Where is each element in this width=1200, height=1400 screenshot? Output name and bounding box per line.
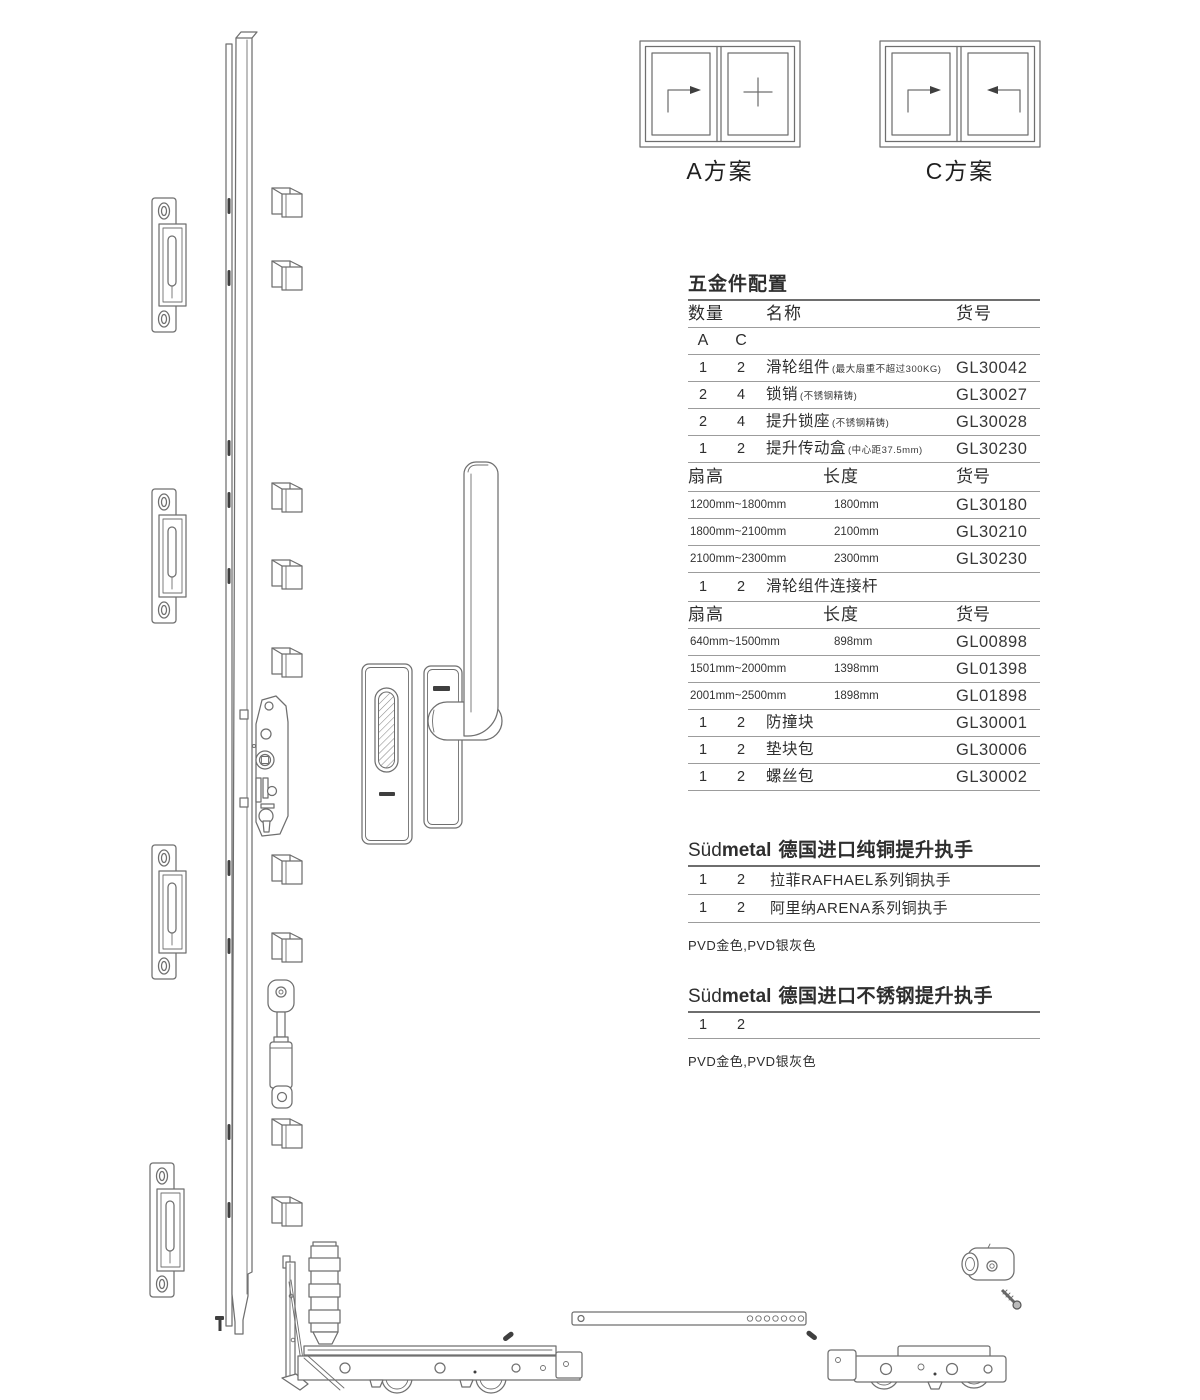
lock-pin-block (272, 188, 302, 217)
table-row: 2 4 锁销(不锈钢精铸) GL30027 (688, 382, 1040, 409)
hardware-config-table: 五金件配置 数量 名称 货号 A C 1 2 滑轮组件(最大扇重不超过300KG… (688, 272, 1040, 791)
item-code: GL30230 (956, 436, 1027, 462)
sash-height-range: 1800mm~2100mm (690, 519, 786, 545)
table-title: 五金件配置 (688, 272, 1040, 301)
qty-a: 1 (688, 895, 718, 922)
lock-keeper-plate (152, 198, 186, 332)
pin (502, 1330, 818, 1342)
qty-a: 1 (688, 764, 718, 790)
lock-pin-block (272, 1197, 302, 1226)
item-code: GL00898 (956, 629, 1027, 655)
table-row: 1 2 拉菲RAFHAEL系列铜执手 (688, 867, 1040, 895)
item-code: GL01398 (956, 656, 1027, 682)
roller-carriage-right (828, 1346, 1006, 1389)
table-header-row: 数量 名称 货号 (688, 301, 1040, 328)
header-code: 货号 (956, 602, 990, 628)
table-row: 2 4 提升锁座(不锈钢精铸) GL30028 (688, 409, 1040, 436)
connecting-rod (572, 1312, 806, 1325)
size-header-row: 扇高 长度 货号 (688, 602, 1040, 629)
item-name: 锁销(不锈钢精铸) (766, 382, 857, 410)
qty-a: 2 (688, 409, 718, 435)
screw (1002, 1290, 1021, 1309)
qty-c: 2 (726, 895, 756, 922)
size-row: 1200mm~1800mm 1800mm GL30180 (688, 492, 1040, 519)
item-note: (不锈钢精铸) (800, 391, 857, 402)
header-sash-height: 扇高 (688, 602, 724, 628)
item-name: 垫块包 (766, 737, 814, 763)
size-row: 2001mm~2500mm 1898mm GL01898 (688, 683, 1040, 710)
item-note: (中心距37.5mm) (848, 445, 923, 456)
size-row: 1501mm~2000mm 1398mm GL01398 (688, 656, 1040, 683)
item-name: 滑轮组件(最大扇重不超过300KG) (766, 355, 941, 383)
table-row: 1 2 防撞块 GL30001 (688, 710, 1040, 737)
item-name: 阿里纳ARENA系列铜执手 (770, 895, 948, 922)
roller-carriage-left (298, 1346, 582, 1393)
sash-height-range: 2100mm~2300mm (690, 546, 786, 572)
qty-c: 2 (726, 355, 756, 381)
item-code: GL30027 (956, 382, 1027, 408)
lift-handle (424, 462, 502, 828)
lock-pin-block (272, 261, 302, 290)
header-qty: 数量 (688, 301, 724, 327)
lock-pin-block (272, 933, 302, 962)
item-code: GL30210 (956, 519, 1027, 545)
header-code: 货号 (956, 301, 992, 327)
sash-height-range: 640mm~1500mm (690, 629, 780, 655)
item-code: GL30180 (956, 492, 1027, 518)
screw (215, 1316, 224, 1331)
qty-c: 4 (726, 382, 756, 408)
qty-c: 2 (726, 1013, 756, 1038)
finish-note: PVD金色,PVD银灰色 (688, 935, 1040, 954)
plan-a-window (640, 41, 800, 147)
lock-pin-block (272, 1119, 302, 1148)
item-code: GL30028 (956, 409, 1027, 435)
qty-col-a: A (688, 328, 718, 354)
item-code: GL30230 (956, 546, 1027, 572)
header-length: 长度 (823, 602, 859, 628)
qty-c: 2 (726, 573, 756, 601)
length-value: 2100mm (834, 519, 879, 545)
lock-pin-block (272, 648, 302, 677)
item-note: (不锈钢精铸) (832, 418, 889, 429)
plan-c-label: C方案 (880, 152, 1040, 186)
qty-a: 1 (688, 355, 718, 381)
qty-col-c: C (726, 328, 756, 354)
table-row: 1 2 滑轮组件(最大扇重不超过300KG) GL30042 (688, 355, 1040, 382)
qty-c: 2 (726, 867, 756, 894)
item-code: GL30002 (956, 764, 1027, 790)
qty-c: 2 (726, 710, 756, 736)
anti-collision-block (962, 1244, 1014, 1280)
table-row: 1 2 垫块包 GL30006 (688, 737, 1040, 764)
table-row: 1 2 螺丝包 GL30002 (688, 764, 1040, 791)
item-name: 拉菲RAFHAEL系列铜执手 (770, 867, 951, 894)
length-value: 1898mm (834, 683, 879, 709)
steel-handle-section: Südmetal德国进口不锈钢提升执手 1 2 PVD金色,PVD银灰色 (688, 984, 1040, 1070)
qty-a: 1 (688, 1013, 718, 1038)
lock-pin-block (272, 855, 302, 884)
header-code: 货号 (956, 463, 990, 491)
qty-a: 1 (688, 710, 718, 736)
sash-height-range: 2001mm~2500mm (690, 683, 786, 709)
qty-a: 1 (688, 867, 718, 894)
lock-keeper-plate (152, 489, 186, 623)
damper-cylinder (268, 980, 294, 1108)
sash-height-range: 1200mm~1800mm (690, 492, 786, 518)
section-title: Südmetal德国进口不锈钢提升执手 (688, 984, 1040, 1013)
catalog-page: A方案 C方案 五金件配置 数量 名称 货号 A C 1 2 滑轮组件(最大扇重… (0, 0, 1200, 1400)
qty-a: 1 (688, 737, 718, 763)
length-value: 1800mm (834, 492, 879, 518)
qty-c: 2 (726, 764, 756, 790)
flat-pull-handle (362, 664, 412, 844)
header-sash-height: 扇高 (688, 463, 724, 491)
item-note: (最大扇重不超过300KG) (832, 364, 941, 375)
table-row: 1 2 阿里纳ARENA系列铜执手 (688, 895, 1040, 923)
item-name: 提升传动盒(中心距37.5mm) (766, 436, 923, 464)
qty-c: 2 (726, 737, 756, 763)
item-code: GL01898 (956, 683, 1027, 709)
header-name: 名称 (766, 301, 802, 327)
lock-pin-block (272, 483, 302, 512)
length-value: 2300mm (834, 546, 879, 572)
length-value: 1398mm (834, 656, 879, 682)
lock-keeper-plate (150, 1163, 184, 1297)
plan-a-label: A方案 (640, 152, 800, 186)
qty-c: 4 (726, 409, 756, 435)
table-row: 1 2 滑轮组件连接杆 (688, 573, 1040, 602)
item-name: 防撞块 (766, 710, 814, 736)
qty-c: 2 (726, 436, 756, 462)
item-name: 螺丝包 (766, 764, 814, 790)
sash-height-range: 1501mm~2000mm (690, 656, 786, 682)
qty-a: 1 (688, 573, 718, 601)
length-value: 898mm (834, 629, 872, 655)
size-row: 1800mm~2100mm 2100mm GL30210 (688, 519, 1040, 546)
brand-name: Süd (688, 986, 722, 1007)
finish-note: PVD金色,PVD银灰色 (688, 1051, 1040, 1070)
vertical-lock-rail (226, 32, 257, 1334)
size-row: 640mm~1500mm 898mm GL00898 (688, 629, 1040, 656)
item-code: GL30042 (956, 355, 1027, 381)
size-header-row: 扇高 长度 货号 (688, 463, 1040, 492)
brass-handle-section: Südmetal德国进口纯铜提升执手 1 2 拉菲RAFHAEL系列铜执手 1 … (688, 838, 1040, 954)
section-title: Südmetal德国进口纯铜提升执手 (688, 838, 1040, 867)
lock-keeper-plate (152, 845, 186, 979)
plan-c-window (880, 41, 1040, 147)
size-row: 2100mm~2300mm 2300mm GL30230 (688, 546, 1040, 573)
table-row: 1 2 (688, 1013, 1040, 1039)
brand-name: Süd (688, 840, 722, 861)
qty-a: 1 (688, 436, 718, 462)
item-name: 滑轮组件连接杆 (766, 573, 878, 601)
header-length: 长度 (823, 463, 859, 491)
qty-a: 2 (688, 382, 718, 408)
lock-pin-block (272, 560, 302, 589)
item-name: 提升锁座(不锈钢精铸) (766, 409, 889, 437)
item-code: GL30006 (956, 737, 1027, 763)
table-row: 1 2 提升传动盒(中心距37.5mm) GL30230 (688, 436, 1040, 463)
qty-subheader-row: A C (688, 328, 1040, 355)
item-code: GL30001 (956, 710, 1027, 736)
